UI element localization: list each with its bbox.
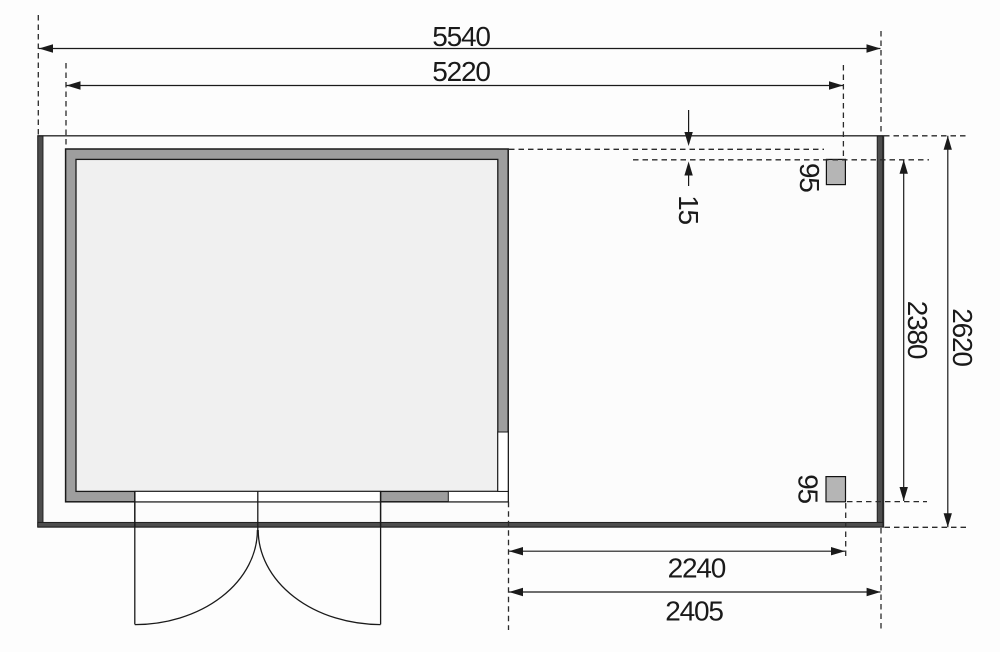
svg-text:2405: 2405: [665, 596, 723, 627]
svg-text:2240: 2240: [668, 552, 726, 583]
svg-text:15: 15: [673, 195, 704, 224]
svg-text:5220: 5220: [432, 56, 490, 87]
svg-text:5540: 5540: [432, 21, 490, 52]
svg-text:2380: 2380: [902, 301, 933, 359]
svg-text:95: 95: [794, 163, 825, 192]
svg-text:95: 95: [793, 474, 824, 503]
svg-text:2620: 2620: [947, 308, 978, 366]
